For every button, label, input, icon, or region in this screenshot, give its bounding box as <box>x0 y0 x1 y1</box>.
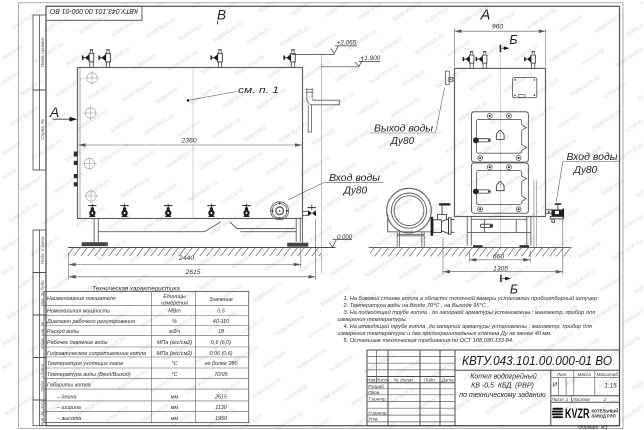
svg-text:Подп.: Подп. <box>424 377 436 382</box>
svg-text:0,06 (0,6): 0,06 (0,6) <box>209 351 232 357</box>
svg-text:Котел водогрейный: Котел водогрейный <box>470 373 537 381</box>
svg-text:И: И <box>553 382 558 389</box>
svg-text:не более 280: не более 280 <box>205 361 238 367</box>
svg-text:Наименование показателя: Наименование показателя <box>47 296 116 302</box>
svg-text:3. На подводящей трубе котла: 3. На подводящей трубе котла , до запорн… <box>344 309 596 316</box>
svg-text:Гидравлическое сопротивление к: Гидравлическое сопротивление котла <box>47 351 146 357</box>
svg-text:Листов: Листов <box>571 397 590 403</box>
svg-text:660: 660 <box>493 254 505 261</box>
svg-text:70/95: 70/95 <box>214 372 228 378</box>
svg-text:Диапазон рабочего регулировани: Диапазон рабочего регулирования <box>46 319 135 325</box>
svg-text:измерения: измерения <box>161 301 188 307</box>
svg-text:КВТУ.043.101.00.000-01 ВО: КВТУ.043.101.00.000-01 ВО <box>50 7 138 16</box>
svg-text:2. Температура воды на Входе: 2. Температура воды на Входе 70°С , на В… <box>343 303 489 309</box>
svg-text:Дата: Дата <box>440 377 454 382</box>
svg-text:0,6 (6,0): 0,6 (6,0) <box>211 340 231 346</box>
svg-text:А: А <box>480 8 491 24</box>
svg-text:измерения температуры и два пр: измерения температуры и два предохраните… <box>338 331 552 337</box>
svg-text:мм: мм <box>171 394 179 400</box>
svg-text:18: 18 <box>218 329 224 335</box>
svg-text:Масса: Масса <box>578 372 592 377</box>
svg-text:+2.065: +2.065 <box>337 40 357 47</box>
svg-text:А: А <box>49 104 59 120</box>
svg-text:Пров.: Пров. <box>368 390 380 395</box>
svg-text:960: 960 <box>492 23 504 30</box>
svg-text:Н.контр.: Н.контр. <box>368 410 387 415</box>
svg-text:Разраб.: Разраб. <box>368 384 385 389</box>
svg-text:Температура воды (Вход/Выход): Температура воды (Вход/Выход) <box>47 372 131 378</box>
svg-text:1: 1 <box>566 397 569 403</box>
svg-text:мм: мм <box>171 416 179 422</box>
svg-text:Ду80: Ду80 <box>573 165 598 176</box>
svg-text:4. На отводящей трубе котла ,: 4. На отводящей трубе котла ,до запорной… <box>344 323 593 330</box>
svg-text:Вход воды: Вход воды <box>329 172 380 184</box>
svg-text:Масштаб: Масштаб <box>596 372 618 377</box>
svg-text:МВт: МВт <box>168 309 181 315</box>
svg-text:Б: Б <box>509 33 517 47</box>
svg-text:измерения температуры.: измерения температуры. <box>338 317 408 323</box>
svg-text:Лит.: Лит. <box>556 372 568 377</box>
svg-text:2615: 2615 <box>184 269 200 276</box>
svg-text:МПа (кгс/см2): МПа (кгс/см2) <box>157 351 192 357</box>
svg-text:Перв. примен.: Перв. примен. <box>40 37 45 68</box>
svg-text:°С: °С <box>171 372 177 378</box>
svg-text:Ду80: Ду80 <box>343 186 368 197</box>
svg-text:КОТЕЛЬНЫЙ: КОТЕЛЬНЫЙ <box>592 408 619 413</box>
svg-text:+1.900: +1.900 <box>361 55 381 62</box>
svg-text:Расход воды: Расход воды <box>47 329 79 335</box>
svg-text:Номинальная мощность: Номинальная мощность <box>47 309 110 315</box>
svg-text:мм: мм <box>171 405 179 411</box>
svg-text:0.000: 0.000 <box>337 235 353 241</box>
svg-text:KVZR: KVZR <box>565 406 590 421</box>
svg-text:Б: Б <box>510 283 518 297</box>
svg-text:м3/ч: м3/ч <box>169 329 180 335</box>
svg-text:0,5: 0,5 <box>217 309 225 315</box>
svg-text:КВ -0,5. КБД. (РВР): КВ -0,5. КБД. (РВР) <box>471 383 534 390</box>
svg-text:по техническому заданию: по техническому заданию <box>459 391 546 399</box>
svg-text:2: 2 <box>603 397 607 403</box>
svg-text:1305: 1305 <box>493 266 508 273</box>
svg-text:МПа (кгс/см2): МПа (кгс/см2) <box>157 340 192 346</box>
svg-text:2360: 2360 <box>180 137 196 144</box>
svg-text:1. На боковой стенке котла в: 1. На боковой стенке котла в области топ… <box>344 295 598 302</box>
svg-text:ЗАВОД РЭП: ЗАВОД РЭП <box>592 414 616 419</box>
svg-text:Значение: Значение <box>209 297 233 303</box>
svg-text:Лист: Лист <box>551 397 564 403</box>
svg-text:1130: 1130 <box>215 405 227 411</box>
svg-text:%: % <box>172 319 177 325</box>
svg-text:КВТУ.043.101.00.000-01 ВО: КВТУ.043.101.00.000-01 ВО <box>462 353 612 368</box>
svg-text:– ширина: – ширина <box>56 405 81 411</box>
svg-text:Справ. №: Справ. № <box>40 119 45 140</box>
svg-text:1:15: 1:15 <box>604 383 617 390</box>
svg-text:В: В <box>217 8 226 23</box>
svg-text:см. п. 1: см. п. 1 <box>238 85 279 95</box>
svg-text:Формат: Формат <box>578 425 599 430</box>
svg-text:Ду80: Ду80 <box>390 136 415 147</box>
svg-text:2615: 2615 <box>214 394 228 400</box>
svg-text:Температура уходящих газов: Температура уходящих газов <box>47 361 123 367</box>
svg-text:1950: 1950 <box>215 416 227 422</box>
svg-text:Габариты котла: Габариты котла <box>47 383 91 389</box>
svg-text:Лист: Лист <box>375 377 388 382</box>
svg-text:2440: 2440 <box>178 255 194 262</box>
svg-text:№ докум.: № докум. <box>394 377 414 382</box>
svg-text:°С: °С <box>171 361 177 367</box>
svg-text:Подп. и дата: Подп. и дата <box>40 236 45 264</box>
svg-text:5. Остальные технические треб: 5. Остальные технические требования по О… <box>344 338 514 344</box>
svg-text:Единицы: Единицы <box>163 294 186 300</box>
svg-text:– длина: – длина <box>56 394 76 400</box>
svg-text:А3: А3 <box>600 425 607 430</box>
svg-text:Утв.: Утв. <box>368 417 378 422</box>
svg-text:40-110: 40-110 <box>213 319 229 325</box>
svg-text:Т.контр.: Т.контр. <box>368 397 387 402</box>
svg-text:Рабочее давление воды: Рабочее давление воды <box>47 340 107 346</box>
svg-text:– высота: – высота <box>56 416 81 422</box>
